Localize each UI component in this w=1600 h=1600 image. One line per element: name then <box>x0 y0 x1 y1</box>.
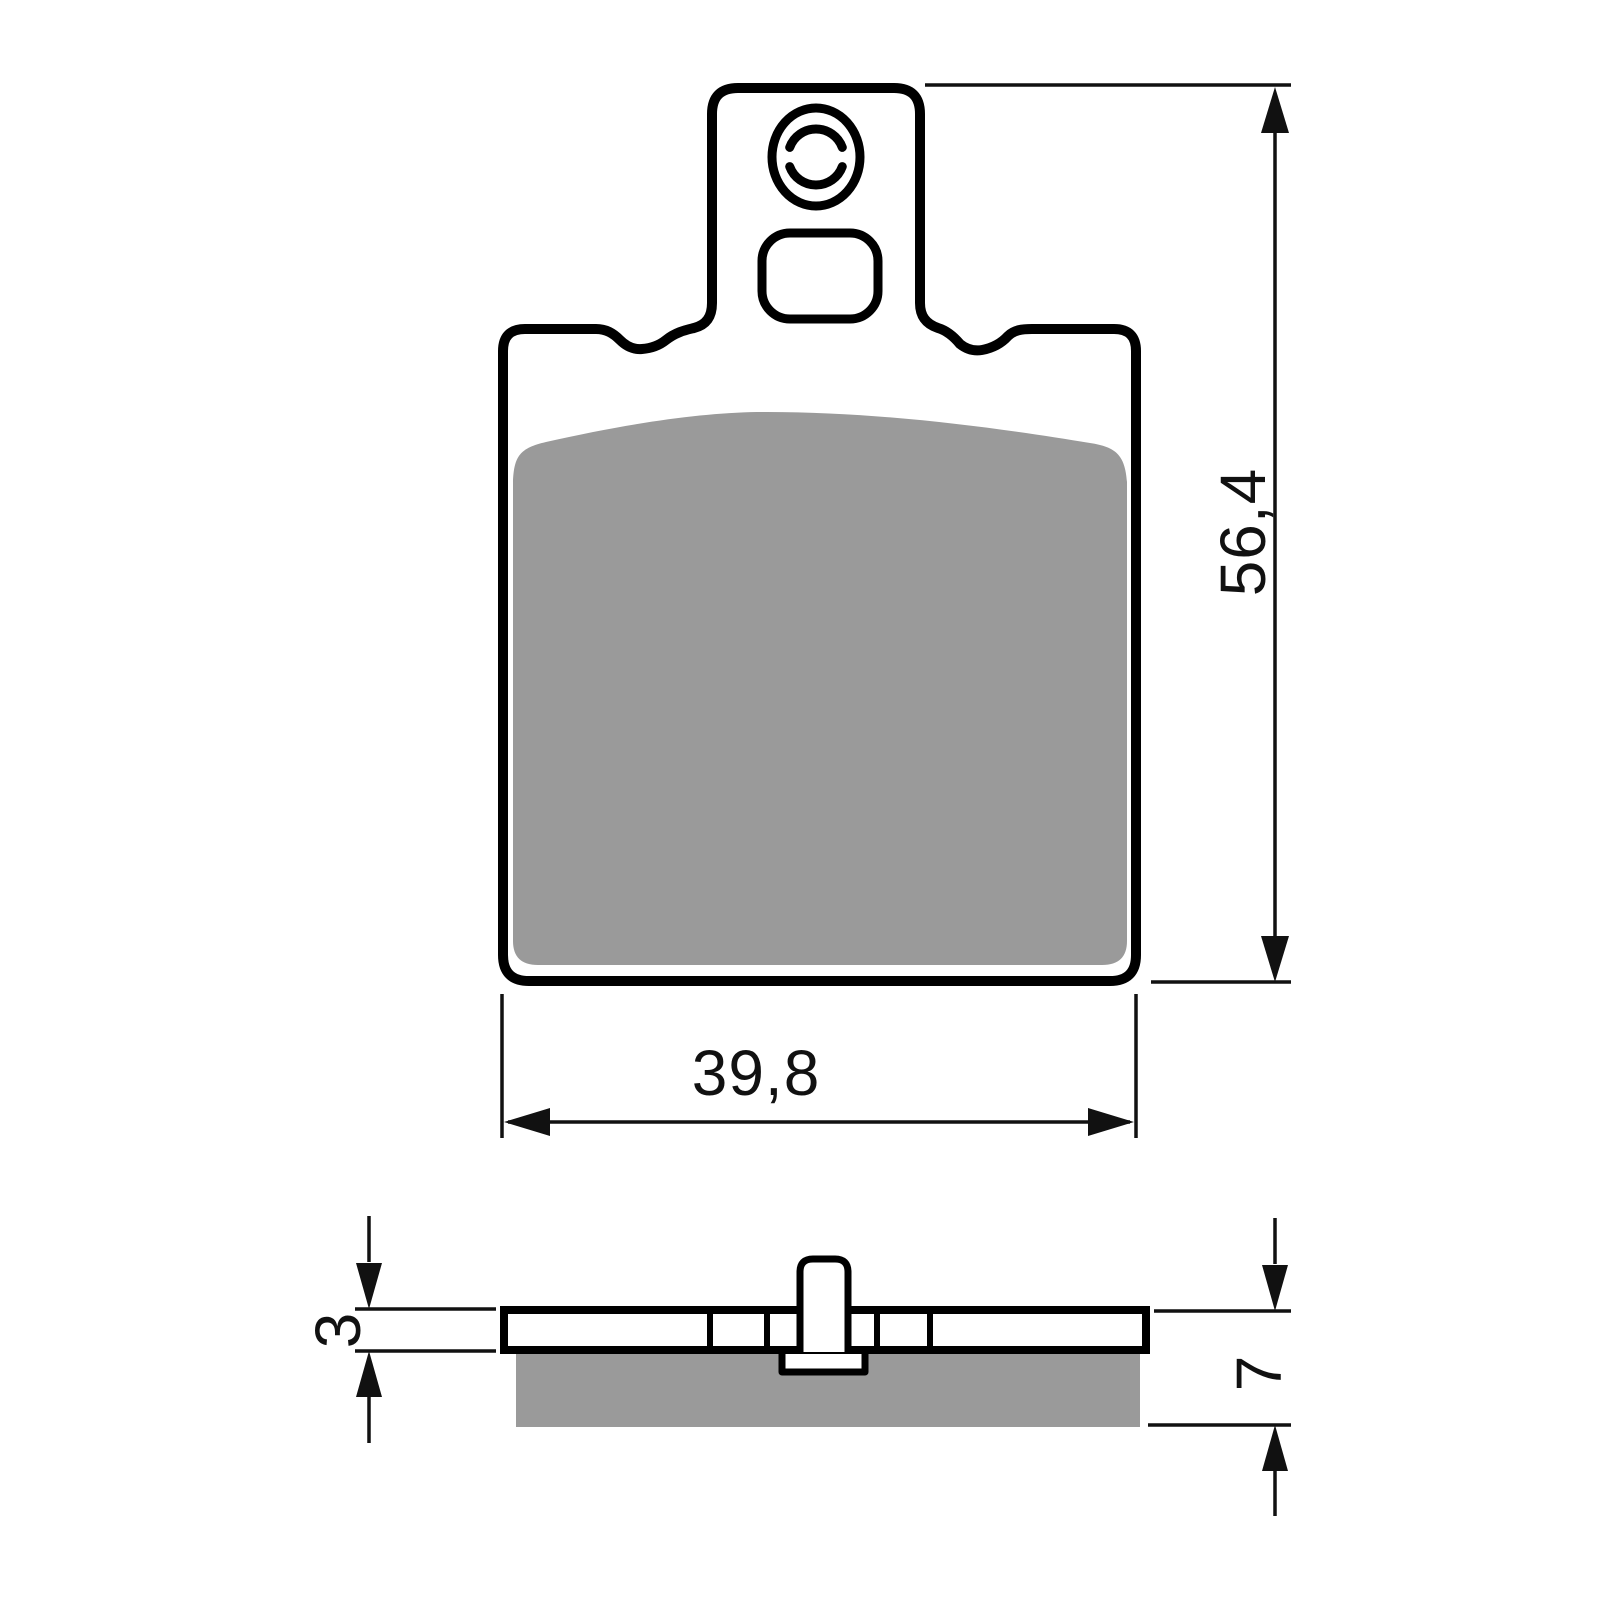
dimension-plate-thickness: 3 <box>302 1216 496 1443</box>
friction-material-front <box>513 412 1127 965</box>
height-arrow-down <box>1261 936 1289 982</box>
dimension-width: 39,8 <box>502 994 1136 1138</box>
width-arrow-left <box>504 1108 550 1136</box>
width-dimension-label: 39,8 <box>692 1037 821 1109</box>
height-dimension-label: 56,4 <box>1207 468 1279 597</box>
width-arrow-right <box>1088 1108 1134 1136</box>
brake-pad-drawing: 56,4 39,8 3 7 <box>0 0 1600 1600</box>
total-arrow-up <box>1262 1425 1288 1471</box>
plate-arrow-down <box>356 1263 382 1309</box>
side-view <box>504 1259 1146 1427</box>
height-arrow-up <box>1261 87 1289 133</box>
side-tab <box>800 1259 848 1352</box>
total-arrow-down <box>1262 1265 1288 1311</box>
front-view <box>503 88 1136 981</box>
dimension-total-thickness: 7 <box>1148 1218 1295 1516</box>
plate-arrow-up <box>356 1351 382 1397</box>
total-thickness-label: 7 <box>1223 1355 1295 1392</box>
square-pin-hole-icon <box>762 233 878 319</box>
plate-thickness-label: 3 <box>302 1312 374 1349</box>
drawing-canvas: 56,4 39,8 3 7 <box>0 0 1600 1600</box>
